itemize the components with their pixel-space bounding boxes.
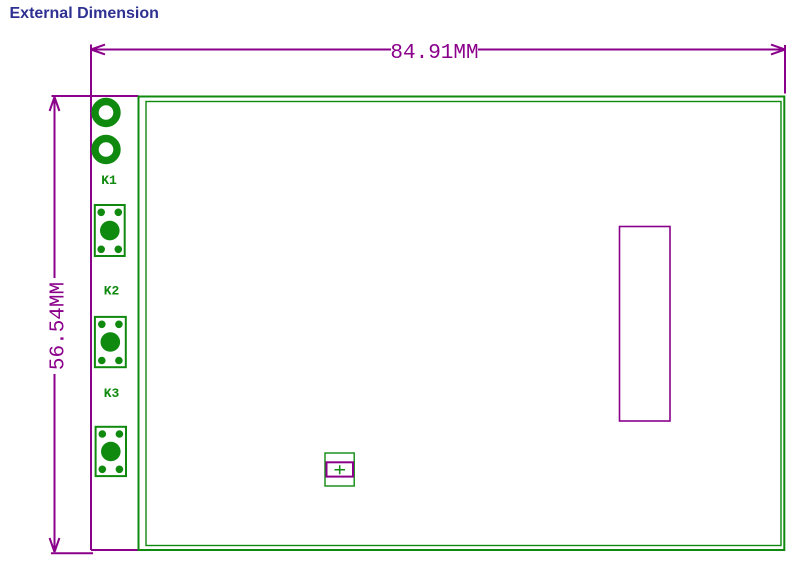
svg-text:K3: K3 (104, 386, 120, 401)
svg-text:84.91MM: 84.91MM (390, 42, 478, 65)
svg-text:56.54MM: 56.54MM (48, 282, 71, 370)
svg-text:K2: K2 (104, 284, 120, 299)
svg-text:External Dimension: External Dimension (10, 5, 159, 22)
svg-text:K1: K1 (101, 173, 117, 188)
